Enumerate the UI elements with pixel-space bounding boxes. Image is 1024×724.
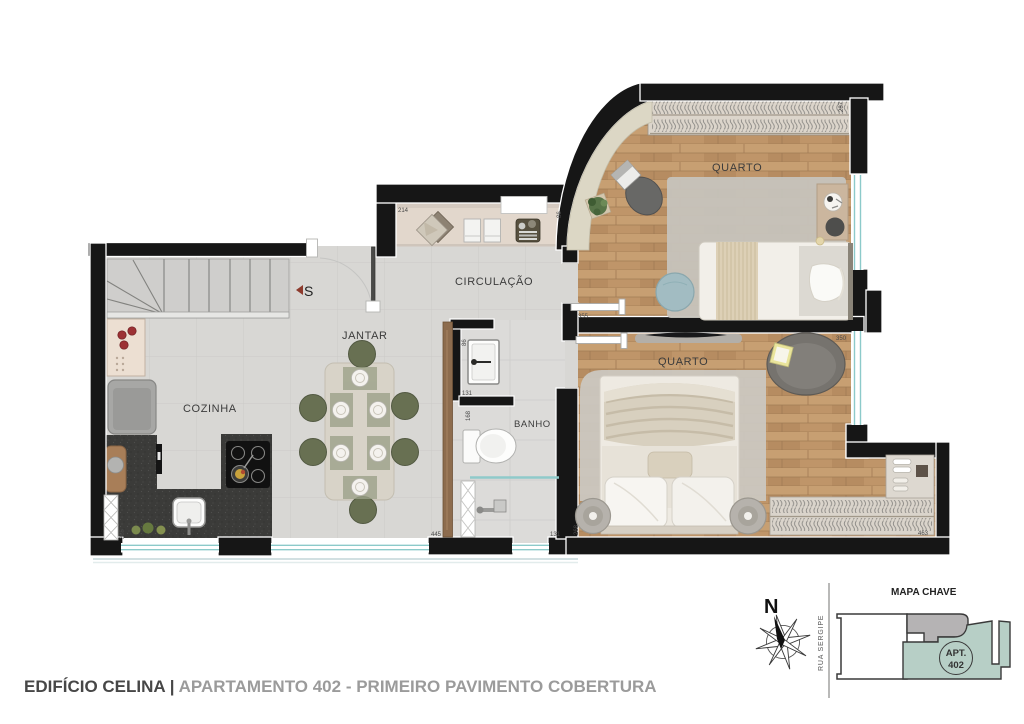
svg-text:168: 168 <box>466 410 472 421</box>
svg-text:S: S <box>304 283 313 299</box>
svg-text:268: 268 <box>574 524 580 535</box>
svg-text:QUARTO: QUARTO <box>712 162 762 174</box>
svg-text:365: 365 <box>120 528 126 539</box>
svg-text:355: 355 <box>578 314 589 320</box>
svg-text:445: 445 <box>431 532 442 538</box>
svg-text:EDIFÍCIO CELINA | APARTAMENTO: EDIFÍCIO CELINA | APARTAMENTO 402 - PRIM… <box>24 677 657 696</box>
svg-text:131: 131 <box>462 391 473 397</box>
svg-text:463: 463 <box>918 531 929 537</box>
svg-text:86: 86 <box>462 339 468 346</box>
svg-text:MAPA CHAVE: MAPA CHAVE <box>891 587 957 598</box>
svg-text:402: 402 <box>948 660 964 671</box>
svg-text:COZINHA: COZINHA <box>183 403 237 415</box>
svg-text:RUA SERGIPE: RUA SERGIPE <box>818 615 825 671</box>
svg-text:QUARTO: QUARTO <box>658 356 708 368</box>
svg-text:86: 86 <box>557 211 563 218</box>
svg-text:214: 214 <box>398 208 409 214</box>
svg-text:JANTAR: JANTAR <box>342 330 388 342</box>
svg-text:350: 350 <box>836 336 847 342</box>
svg-text:CIRCULAÇÃO: CIRCULAÇÃO <box>455 275 533 288</box>
svg-text:131: 131 <box>550 532 561 538</box>
svg-text:BANHO: BANHO <box>514 419 551 430</box>
svg-text:N: N <box>764 596 778 618</box>
svg-text:287: 287 <box>839 101 845 112</box>
svg-text:APT.: APT. <box>946 648 967 659</box>
